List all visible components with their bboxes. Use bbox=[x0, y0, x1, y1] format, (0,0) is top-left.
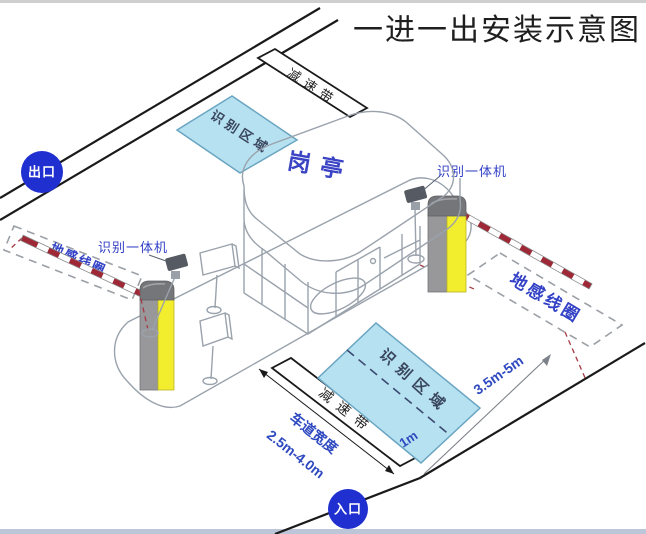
entrance-badge: 入口 bbox=[328, 489, 368, 529]
barrier-cabinet-right-gray bbox=[428, 214, 447, 292]
barrier-cabinet-right-yellow bbox=[447, 214, 466, 292]
exit-badge-label: 出口 bbox=[28, 165, 56, 180]
top-border bbox=[0, 0, 646, 3]
barrier-cabinet-left-gray bbox=[140, 298, 158, 390]
entrance-badge-label: 入口 bbox=[334, 502, 362, 517]
installation-diagram: 减速带 识别区域 地感线圈 减速带 车道宽度 2.5m-4.0m 识别区域 1m… bbox=[0, 0, 646, 534]
camera-bracket-right bbox=[411, 202, 420, 210]
diagram-canvas: 减速带 识别区域 地感线圈 减速带 车道宽度 2.5m-4.0m 识别区域 1m… bbox=[0, 0, 646, 534]
camera-label-left: 识别一体机 bbox=[98, 240, 168, 255]
bottom-border bbox=[0, 529, 646, 534]
page-title: 一进一出安装示意图 bbox=[353, 14, 641, 47]
exit-badge: 出口 bbox=[21, 151, 63, 193]
camera-bracket-left bbox=[171, 271, 180, 279]
camera-label-right: 识别一体机 bbox=[437, 164, 507, 179]
